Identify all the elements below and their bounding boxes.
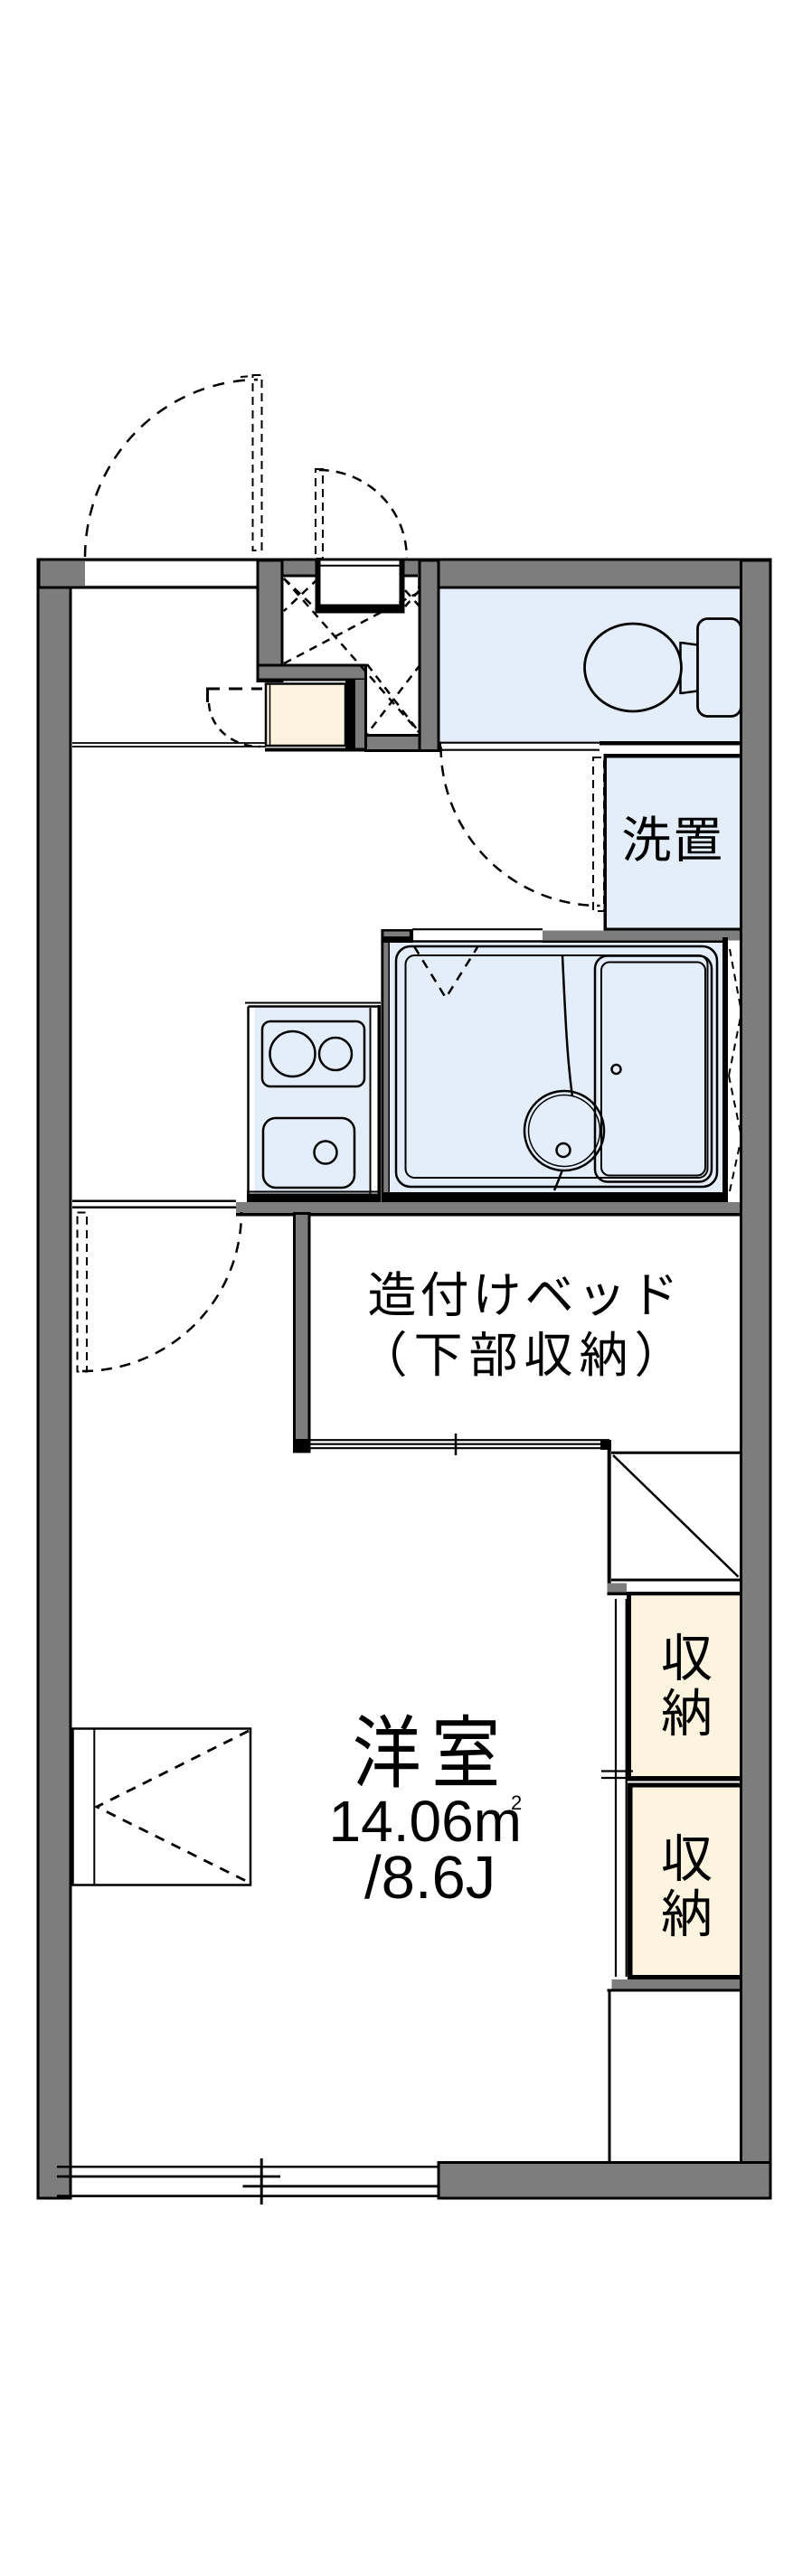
- svg-text:2: 2: [511, 1791, 522, 1814]
- svg-text:/8.6J: /8.6J: [364, 1844, 496, 1912]
